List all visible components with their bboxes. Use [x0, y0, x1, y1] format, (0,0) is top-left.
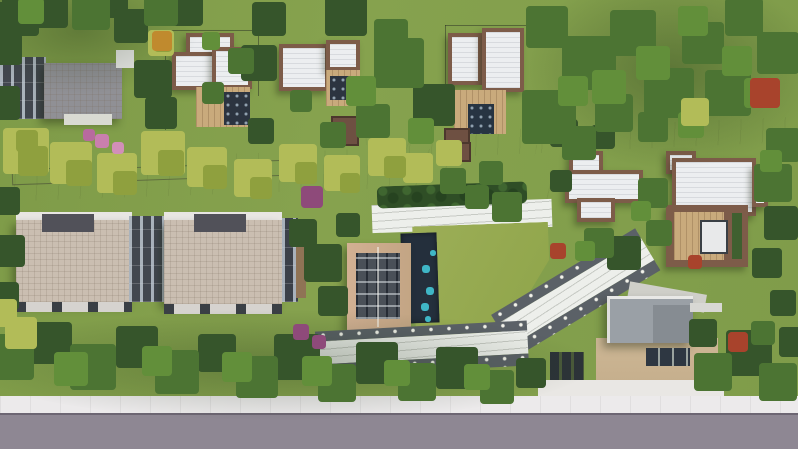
pool-loungers [0, 0, 2, 2]
gatehouse [607, 296, 693, 343]
villa-a-patio-furniture [224, 92, 250, 125]
villa-access-path [528, 145, 556, 207]
apartment-end-wall [296, 220, 306, 298]
gatehouse-canopy [690, 303, 722, 312]
paver-outline [134, 164, 220, 181]
villa-c-roof [448, 33, 482, 85]
villa-e-roof [752, 165, 768, 207]
fence-line [445, 25, 531, 26]
villa-b-roof [326, 40, 360, 71]
fence-line [258, 20, 259, 96]
gatehouse-glass-doors [646, 348, 690, 366]
gatehouse-roof-panel [653, 305, 693, 343]
fence-line [445, 25, 446, 95]
villa-c-roof [482, 28, 524, 92]
apartment-side-facade [129, 216, 165, 302]
apartment-base [16, 302, 132, 312]
villa-b-roof [279, 44, 329, 91]
paver-outline [246, 159, 307, 177]
apartment-roof [164, 220, 282, 304]
apartment-block-west [16, 212, 132, 312]
villa-d-roof [577, 198, 615, 222]
villa-b-pavilion [331, 116, 359, 146]
apartment-penthouse [42, 214, 94, 232]
villa-c-patio [468, 104, 494, 134]
villa-b-patio-furniture [330, 76, 354, 100]
path-pavilion [441, 142, 471, 162]
apartment-block-east [164, 212, 282, 314]
villa-e-planter [732, 213, 742, 259]
aerial-render [0, 0, 798, 449]
canopy-shadow [0, 0, 200, 95]
villa-e-deck-frame [666, 205, 748, 267]
main-road [0, 413, 798, 449]
paver-outline [12, 168, 65, 186]
rowhouse-terrace [64, 114, 112, 125]
villa-a-roof [212, 47, 252, 89]
villa-e-core [700, 220, 728, 254]
apartment-penthouse [194, 214, 246, 232]
apartment-roof [16, 220, 132, 302]
main-path [0, 148, 393, 202]
